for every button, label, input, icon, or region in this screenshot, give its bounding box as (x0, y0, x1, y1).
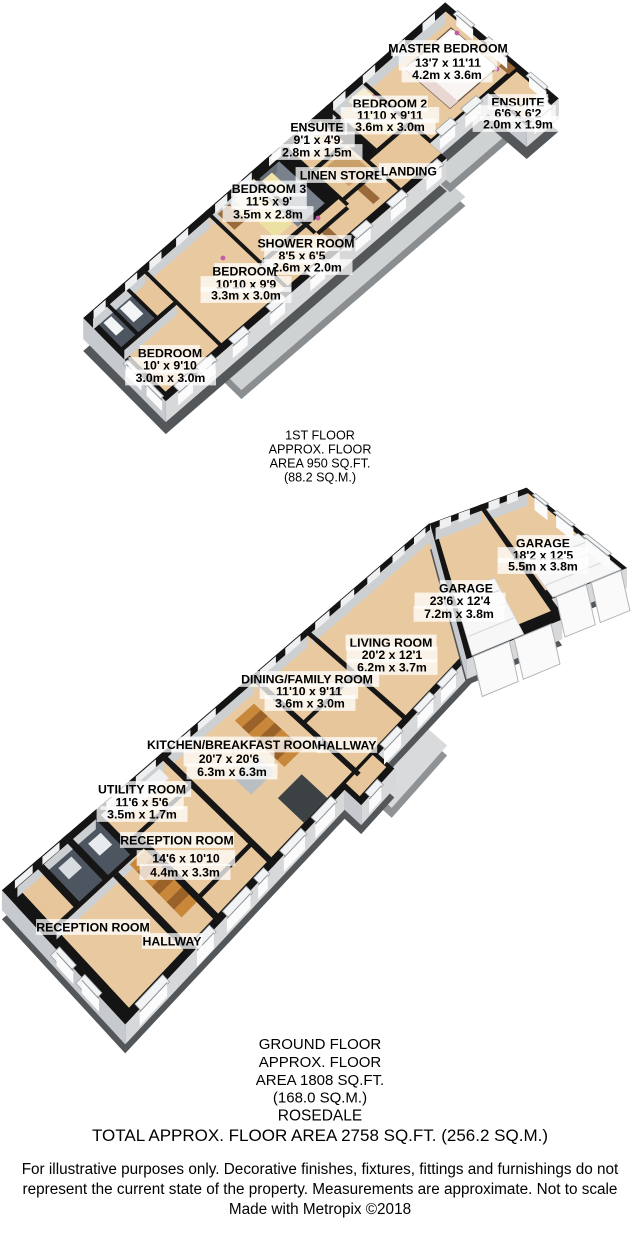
svg-text:LANDING: LANDING (381, 164, 437, 178)
svg-text:HALLWAY: HALLWAY (318, 738, 377, 752)
svg-text:2.6m x 2.0m: 2.6m x 2.0m (272, 260, 342, 274)
svg-text:GROUND FLOOR: GROUND FLOOR (259, 1036, 382, 1053)
svg-text:(88.2 SQ.M.): (88.2 SQ.M.) (284, 471, 356, 485)
svg-text:14'6 x 10'10: 14'6 x 10'10 (152, 851, 220, 865)
svg-text:(168.0 SQ.M.): (168.0 SQ.M.) (273, 1090, 367, 1107)
svg-text:RECEPTION ROOM: RECEPTION ROOM (36, 920, 149, 934)
svg-text:TOTAL APPROX. FLOOR AREA 2758: TOTAL APPROX. FLOOR AREA 2758 SQ.FT. (25… (92, 1126, 548, 1145)
svg-text:4.4m x 3.3m: 4.4m x 3.3m (150, 865, 220, 879)
svg-text:4.2m x 3.6m: 4.2m x 3.6m (412, 68, 482, 82)
svg-text:7.2m x 3.8m: 7.2m x 3.8m (424, 607, 494, 621)
svg-text:3.6m x 3.0m: 3.6m x 3.0m (355, 120, 425, 134)
svg-text:3.0m x 3.0m: 3.0m x 3.0m (136, 371, 206, 385)
svg-text:APPROX. FLOOR: APPROX. FLOOR (259, 1054, 382, 1071)
svg-text:For illustrative purposes only: For illustrative purposes only. Decorati… (22, 1161, 619, 1178)
svg-text:AREA 1808 SQ.FT.: AREA 1808 SQ.FT. (256, 1072, 384, 1089)
svg-text:Made with Metropix ©2018: Made with Metropix ©2018 (229, 1201, 411, 1218)
svg-text:KITCHEN/BREAKFAST ROOM: KITCHEN/BREAKFAST ROOM (147, 738, 322, 752)
svg-text:2.8m x 1.5m: 2.8m x 1.5m (282, 145, 352, 159)
svg-text:3.3m x 3.0m: 3.3m x 3.0m (211, 288, 281, 302)
svg-text:AREA 950 SQ.FT.: AREA 950 SQ.FT. (270, 457, 371, 471)
svg-text:ROSEDALE: ROSEDALE (278, 1108, 362, 1125)
svg-text:2.0m x 1.9m: 2.0m x 1.9m (483, 117, 553, 131)
svg-text:23'6 x 12'4: 23'6 x 12'4 (430, 594, 491, 608)
svg-text:HALLWAY: HALLWAY (143, 934, 202, 948)
svg-text:3.5m x 2.8m: 3.5m x 2.8m (233, 207, 303, 221)
svg-text:MASTER BEDROOM: MASTER BEDROOM (388, 41, 508, 55)
svg-text:1ST FLOOR: 1ST FLOOR (285, 429, 355, 443)
svg-text:LINEN STORE: LINEN STORE (300, 168, 382, 182)
svg-text:represent the current state of: represent the current state of the prope… (23, 1181, 618, 1198)
svg-text:3.6m x 3.0m: 3.6m x 3.0m (275, 696, 345, 710)
svg-text:5.5m x 3.8m: 5.5m x 3.8m (508, 559, 578, 573)
svg-text:3.5m x 1.7m: 3.5m x 1.7m (107, 807, 177, 821)
svg-text:APPROX. FLOOR: APPROX. FLOOR (269, 443, 372, 457)
svg-text:RECEPTION ROOM: RECEPTION ROOM (120, 833, 233, 847)
svg-text:6.3m x 6.3m: 6.3m x 6.3m (197, 765, 267, 779)
